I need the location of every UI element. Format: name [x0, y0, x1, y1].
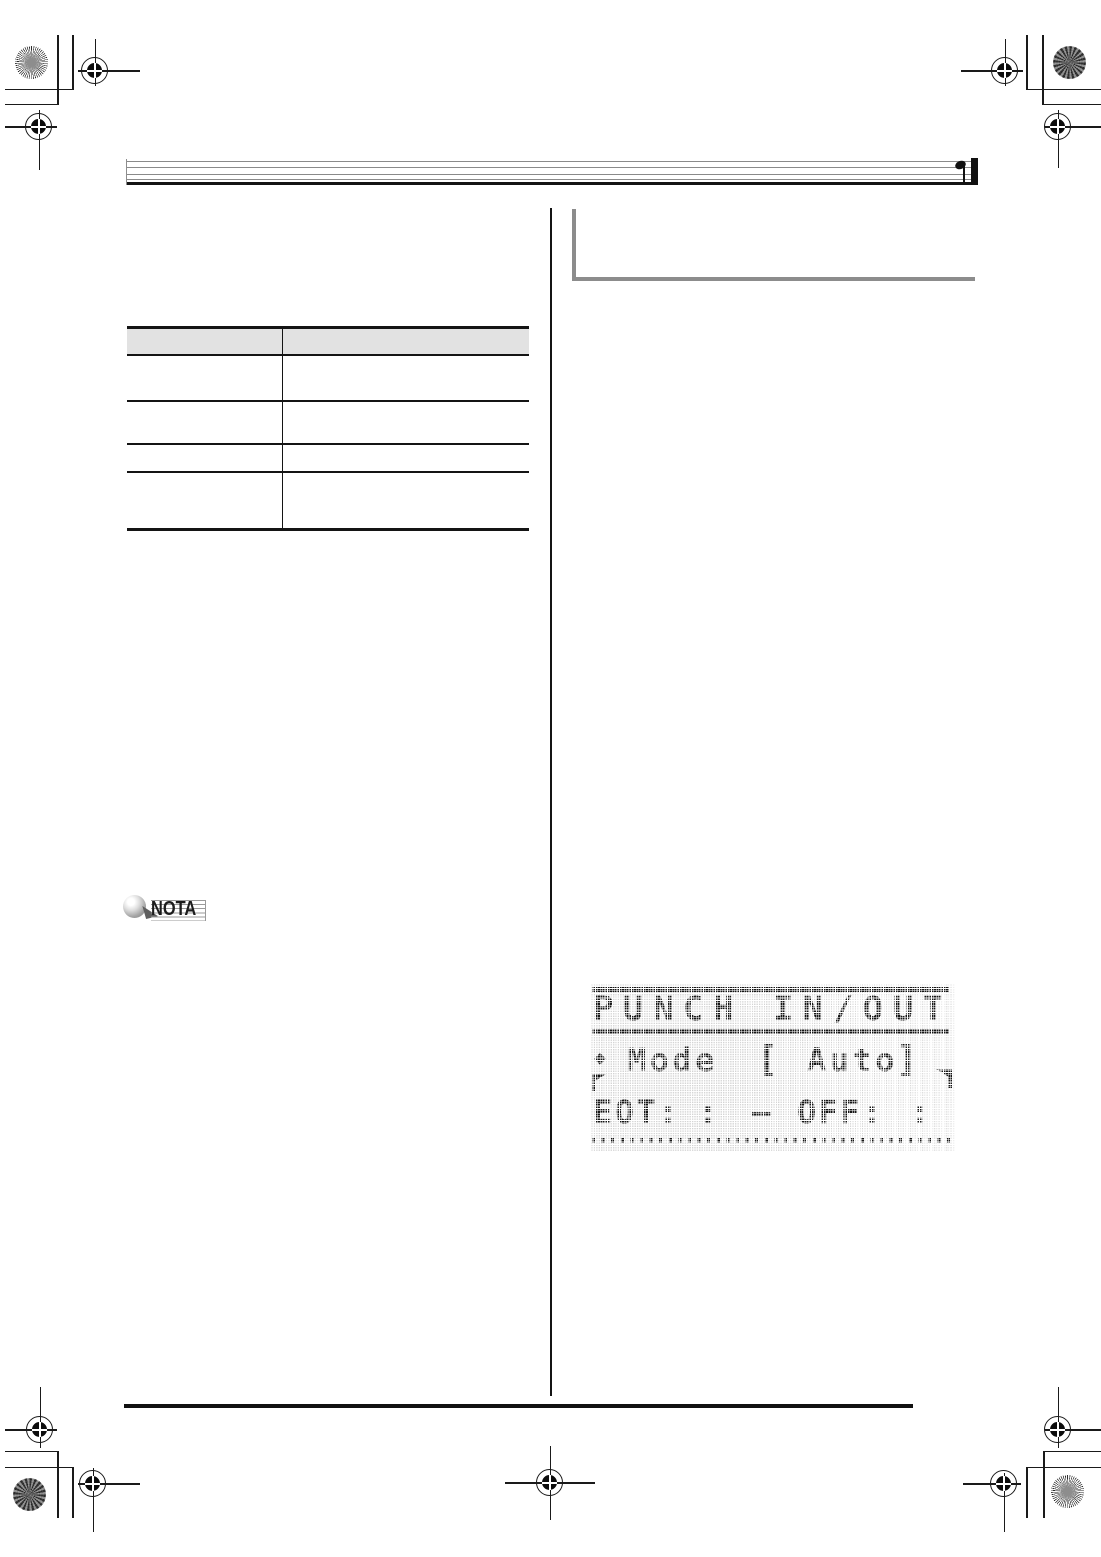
lcd-off-value: : [910, 1096, 929, 1128]
crop-mark [1042, 35, 1044, 105]
table-cell [127, 473, 283, 528]
note-badge: NOTA [122, 892, 212, 928]
note-stem-icon [963, 164, 965, 183]
table-row [127, 402, 529, 445]
lcd-mode-label: Mode [627, 1044, 718, 1076]
crop-mark [5, 104, 58, 106]
crop-mark [1026, 1467, 1101, 1469]
section-heading-box [572, 209, 975, 281]
lcd-bullet-icon: ◆ [594, 1047, 606, 1067]
music-staff-banner [126, 159, 978, 185]
settings-table [127, 326, 529, 531]
column-divider [550, 208, 552, 1396]
lcd-mode-value: Auto [807, 1044, 898, 1076]
table-header-row [127, 329, 529, 356]
crosshair-target-icon [536, 1469, 563, 1496]
crop-mark [1026, 35, 1028, 90]
crop-mark [5, 89, 73, 91]
lcd-corner-marker-left-icon [592, 1074, 606, 1091]
lcd-bracket-open: [ [757, 1042, 779, 1078]
table-cell [127, 445, 283, 471]
crop-mark [1043, 1451, 1101, 1453]
lcd-display: PUNCH IN/OUT ◆ Mode [ Auto ] EOT: : – OF… [591, 984, 955, 1152]
table-cell [127, 402, 283, 443]
table-row [127, 473, 529, 528]
lcd-dashed-line-bottom [592, 1138, 953, 1143]
lcd-dotted-separator [592, 1029, 949, 1034]
crop-mark [1043, 1451, 1045, 1518]
crop-mark [1026, 89, 1101, 91]
note-head-icon [954, 159, 967, 171]
crosshair-target-icon [990, 1470, 1017, 1497]
staff-end-bar [971, 158, 978, 185]
manual-page: NOTA PUNCH IN/OUT ◆ Mode [ Auto ] EOT: :… [0, 0, 1101, 1557]
table-header-cell [127, 329, 283, 354]
lcd-corner-marker-right-icon [936, 1069, 952, 1088]
table-cell [283, 445, 530, 471]
crop-mark [57, 1451, 59, 1518]
guilloche-registration-icon [1053, 46, 1086, 79]
lcd-title: PUNCH IN/OUT [593, 992, 953, 1026]
crosshair-target-icon [1044, 1416, 1071, 1443]
crosshair-target-icon [79, 1470, 106, 1497]
footer-rule [124, 1404, 913, 1408]
guilloche-registration-icon [13, 1478, 46, 1511]
starburst-registration-icon [15, 46, 48, 79]
table-cell [283, 473, 530, 528]
crop-mark [72, 1467, 74, 1518]
crop-mark [57, 35, 59, 105]
table-header-cell [283, 329, 530, 354]
crop-mark [1026, 1467, 1028, 1518]
crosshair-target-icon [26, 1416, 53, 1443]
crosshair-target-icon [81, 57, 108, 84]
table-cell [283, 356, 530, 400]
table-row [127, 356, 529, 402]
starburst-registration-icon [1051, 1475, 1084, 1508]
crosshair-target-icon [991, 57, 1018, 84]
lcd-off-label: OFF: [797, 1096, 884, 1128]
lcd-eot-value: : [698, 1096, 717, 1128]
lcd-eot-label: EOT: [593, 1096, 680, 1128]
lcd-bracket-close: ] [896, 1042, 918, 1078]
crosshair-target-icon [1044, 113, 1071, 140]
table-row [127, 445, 529, 473]
crop-mark [5, 1467, 73, 1469]
crop-mark [5, 1451, 58, 1453]
crosshair-target-icon [25, 113, 52, 140]
lcd-separator-dash: – [751, 1096, 770, 1128]
crop-mark [1042, 104, 1101, 106]
table-cell [283, 402, 530, 443]
table-cell [127, 356, 283, 400]
nota-label: NOTA [151, 898, 196, 921]
crop-mark [72, 35, 74, 90]
